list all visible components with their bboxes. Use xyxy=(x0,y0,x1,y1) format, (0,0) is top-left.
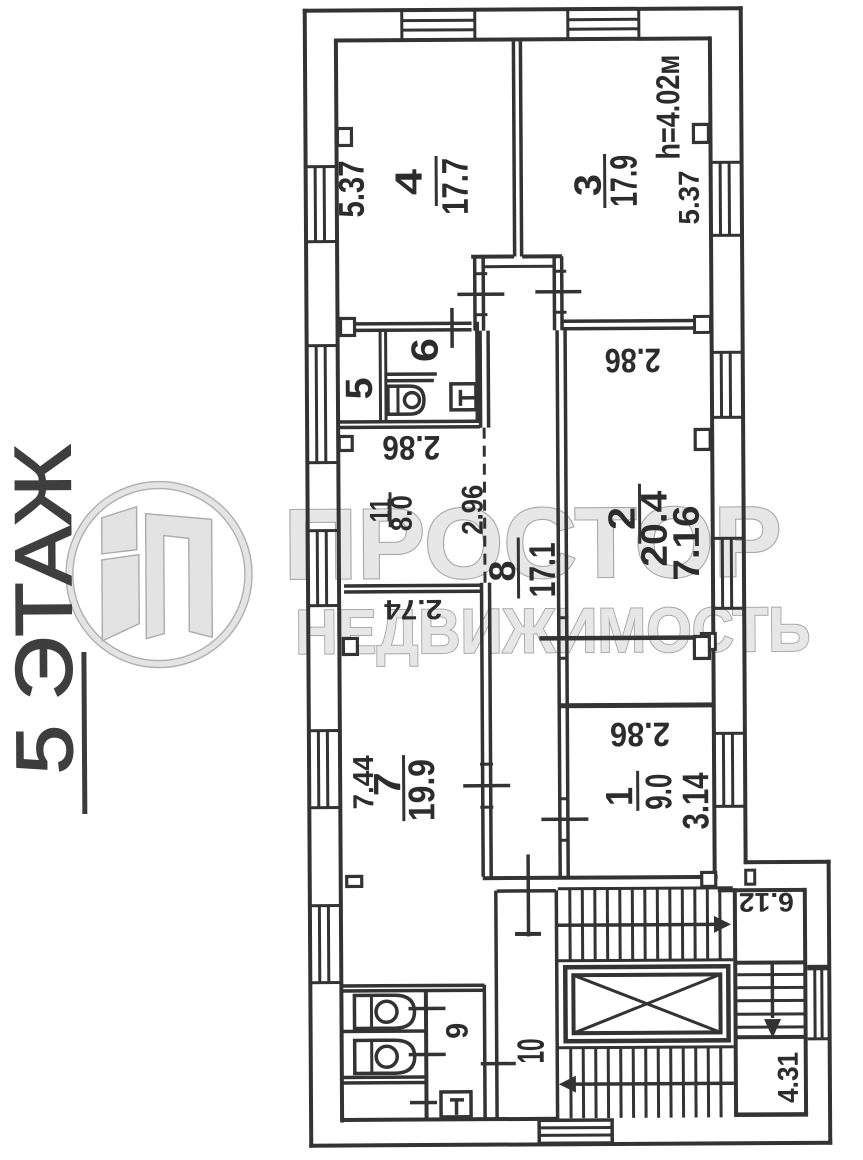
svg-text:8.0: 8.0 xyxy=(386,495,419,531)
svg-text:5.37: 5.37 xyxy=(674,170,706,224)
svg-text:2.96: 2.96 xyxy=(456,485,489,535)
svg-text:17.7: 17.7 xyxy=(435,158,476,215)
svg-text:17.9: 17.9 xyxy=(604,155,646,207)
svg-text:4: 4 xyxy=(389,169,431,195)
svg-text:5: 5 xyxy=(339,377,381,399)
svg-text:10: 10 xyxy=(511,1038,553,1063)
svg-text:5 ЭТАЖ: 5 ЭТАЖ xyxy=(0,444,89,775)
svg-text:НЕДВИЖИМОСТЬ: НЕДВИЖИМОСТЬ xyxy=(295,595,810,668)
svg-text:19.9: 19.9 xyxy=(401,759,442,821)
svg-text:6.12: 6.12 xyxy=(739,887,794,917)
svg-text:9.0: 9.0 xyxy=(638,774,679,810)
svg-text:2.86: 2.86 xyxy=(382,428,440,466)
svg-text:7.16: 7.16 xyxy=(666,505,707,580)
svg-text:1: 1 xyxy=(599,787,641,806)
svg-text:17.1: 17.1 xyxy=(522,542,563,597)
svg-text:8: 8 xyxy=(482,560,523,581)
svg-text:9: 9 xyxy=(440,1023,475,1039)
svg-text:6: 6 xyxy=(405,338,447,362)
svg-text:2.86: 2.86 xyxy=(605,341,661,379)
svg-text:4.31: 4.31 xyxy=(773,1052,805,1103)
svg-text:3.14: 3.14 xyxy=(675,772,716,830)
svg-text:2.86: 2.86 xyxy=(610,715,670,753)
svg-text:5.37: 5.37 xyxy=(331,160,372,217)
svg-text:2.74: 2.74 xyxy=(384,594,443,625)
svg-text:h=4.02м: h=4.02м xyxy=(649,55,687,160)
